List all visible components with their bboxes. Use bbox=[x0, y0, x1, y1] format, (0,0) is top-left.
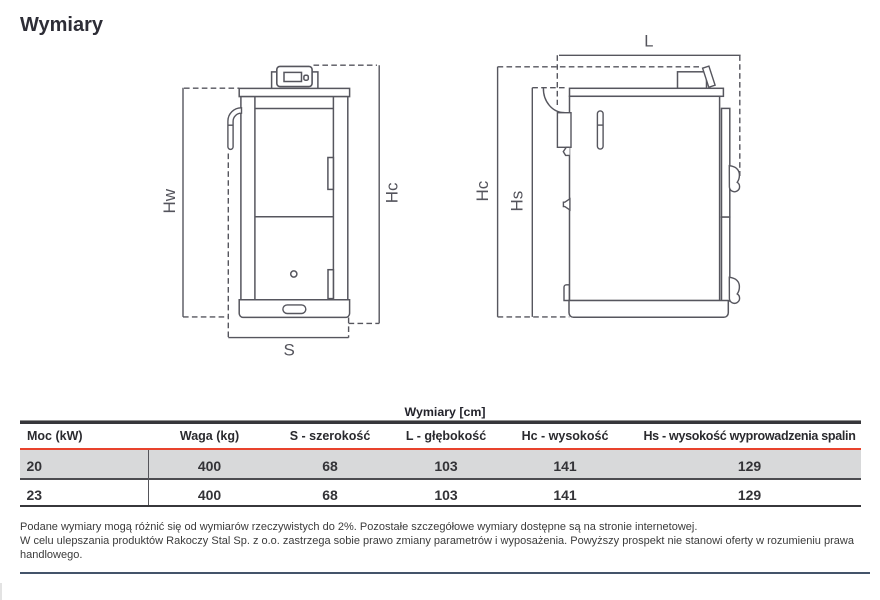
svg-text:Hc: Hc bbox=[383, 182, 402, 203]
svg-text:Hs: Hs bbox=[508, 191, 527, 212]
svg-text:L: L bbox=[644, 32, 653, 50]
svg-text:S: S bbox=[284, 340, 295, 359]
svg-text:Hc: Hc bbox=[473, 180, 492, 201]
svg-text:Hw: Hw bbox=[160, 188, 179, 213]
